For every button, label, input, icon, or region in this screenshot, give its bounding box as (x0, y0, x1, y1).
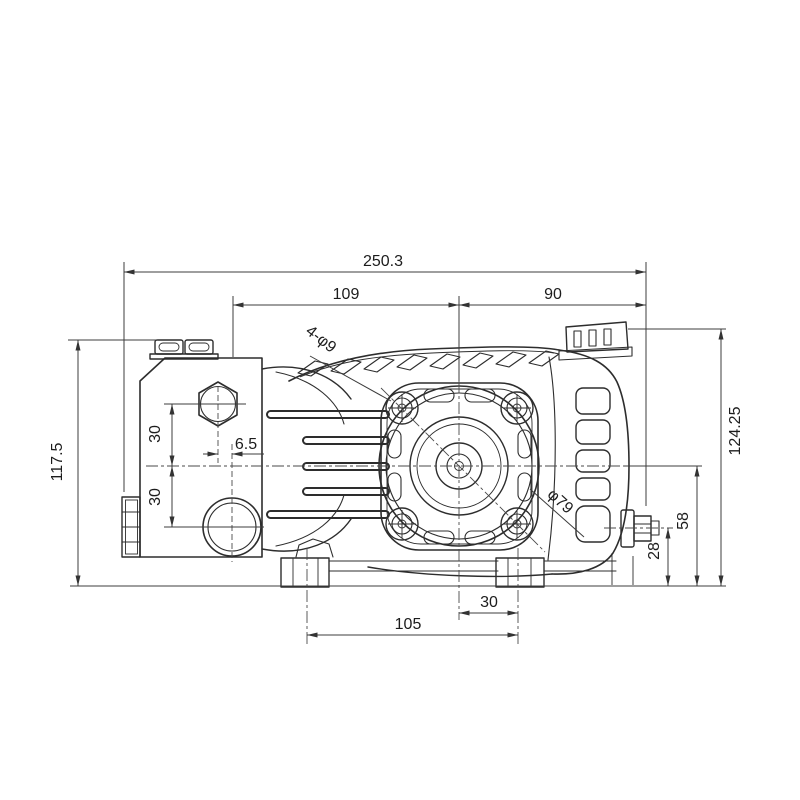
dim-label-overall-height-right: 124.25 (727, 406, 744, 455)
side-connector (122, 497, 140, 557)
dim-label-bolt-circle: φ79 (544, 486, 576, 518)
dim-label-port-offset: 6.5 (235, 436, 257, 453)
terminal-block (559, 322, 632, 360)
pump-dimension-drawing: 250.3 109 90 117.5 30 30 6.5 124.25 58 2… (0, 0, 800, 800)
cooling-rods (267, 411, 389, 518)
dim-label-outlet-port-height: 28 (646, 542, 663, 560)
top-fitting (150, 340, 218, 359)
dim-label-foot-spacing: 105 (395, 616, 422, 633)
dim-label-upper-right-span: 90 (544, 286, 562, 303)
bell-housing (262, 367, 351, 551)
dim-label-port-spacing-lower: 30 (147, 488, 164, 506)
dim-label-upper-left-span: 109 (333, 286, 360, 303)
motor-side-fins (576, 388, 610, 542)
dim-label-foot-to-center: 30 (480, 594, 498, 611)
dim-label-center-height: 58 (675, 512, 692, 530)
dim-label-overall-height-left: 117.5 (49, 442, 66, 481)
leader-bolt-holes (310, 356, 391, 401)
dim-label-port-spacing-upper: 30 (147, 425, 164, 443)
dimension-layer: 250.3 109 90 117.5 30 30 6.5 124.25 58 2… (49, 253, 744, 635)
dim-label-mounting-holes: 4-φ9 (302, 322, 339, 356)
motor-top-ribs (298, 351, 559, 376)
technical-drawing-page: 250.3 109 90 117.5 30 30 6.5 124.25 58 2… (0, 0, 800, 800)
dim-label-overall-length: 250.3 (363, 253, 403, 270)
mounting-feet (281, 539, 616, 587)
